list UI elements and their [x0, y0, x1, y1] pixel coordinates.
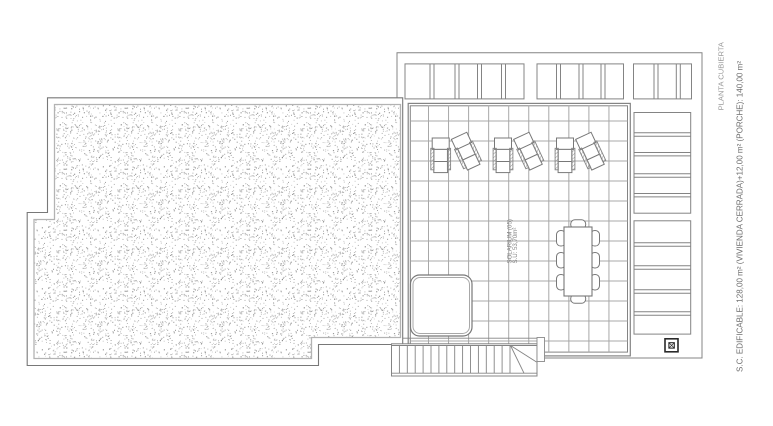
svg-text:PLANTA CUBIERTA: PLANTA CUBIERTA [717, 41, 726, 110]
svg-text:S.U: 53,70m²: S.U: 53,70m² [512, 228, 519, 264]
svg-text:S.C. EDIFICABLE: 128,00 m² (VI: S.C. EDIFICABLE: 128,00 m² (VIVIENDA CER… [735, 61, 744, 372]
